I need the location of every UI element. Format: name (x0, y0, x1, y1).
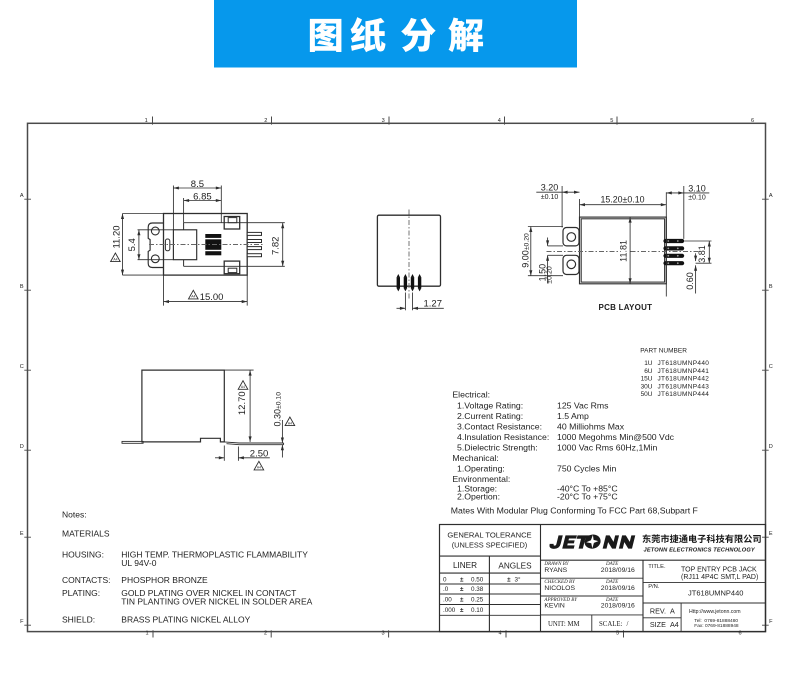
svg-text:1000 Vac Rms 60Hz,1Min: 1000 Vac Rms 60Hz,1Min (557, 443, 657, 453)
svg-text:±: ± (460, 586, 464, 593)
svg-text:2018/09/16: 2018/09/16 (601, 567, 635, 574)
svg-text:1: 1 (145, 118, 148, 124)
svg-text:PHOSPHOR BRONZE: PHOSPHOR BRONZE (121, 575, 208, 585)
svg-text:A4: A4 (191, 295, 195, 299)
svg-text:(RJ11 4P4C SMT,L PAD): (RJ11 4P4C SMT,L PAD) (681, 574, 758, 581)
svg-text:A: A (20, 193, 24, 199)
svg-text:(UNLESS SPECIFIED): (UNLESS SPECIFIED) (452, 541, 528, 550)
svg-text:C: C (769, 364, 773, 370)
svg-text:1.Operating:: 1.Operating: (457, 464, 505, 474)
svg-text:4.Insulation Resistance:: 4.Insulation Resistance: (457, 432, 549, 442)
svg-text:.000: .000 (443, 607, 456, 614)
svg-text:F: F (20, 619, 24, 625)
svg-text:Environmental:: Environmental: (452, 474, 510, 484)
svg-text:6: 6 (751, 118, 754, 124)
svg-text:JT618UMNP441: JT618UMNP441 (658, 368, 710, 375)
svg-text:B: B (20, 284, 24, 290)
svg-text:2.Current Rating:: 2.Current Rating: (457, 411, 523, 421)
svg-text:A4: A4 (670, 620, 679, 629)
svg-text:8.5: 8.5 (191, 179, 204, 190)
svg-text:D: D (20, 444, 24, 450)
svg-text:ANGLES: ANGLES (498, 561, 532, 570)
svg-text:30U: 30U (641, 383, 653, 390)
svg-text:A4: A4 (241, 385, 245, 389)
svg-text:12.70: 12.70 (237, 391, 248, 415)
svg-text:1U: 1U (644, 360, 653, 367)
svg-text:E: E (20, 531, 24, 537)
svg-text:NICOLOS: NICOLOS (544, 585, 575, 592)
svg-text:PCB LAYOUT: PCB LAYOUT (599, 303, 653, 312)
svg-text:SIZE: SIZE (650, 620, 666, 629)
svg-text:±0.10: ±0.10 (688, 195, 706, 202)
svg-text:3.Contact Resistance:: 3.Contact Resistance: (457, 422, 542, 432)
svg-text:RYANS: RYANS (544, 567, 567, 574)
svg-text:±: ± (507, 576, 511, 583)
svg-text:2: 2 (264, 630, 267, 636)
svg-text:2018/09/16: 2018/09/16 (601, 603, 635, 610)
svg-text:PART NUMBER: PART NUMBER (640, 348, 687, 355)
svg-text:40 Milliohms Max: 40 Milliohms Max (557, 422, 625, 432)
svg-text:3: 3 (381, 630, 384, 636)
svg-text:0.60: 0.60 (685, 272, 695, 290)
svg-text:JETONN ELECTRONICS TECHNOLOGY: JETONN ELECTRONICS TECHNOLOGY (644, 547, 756, 553)
svg-text:Electrical:: Electrical: (452, 390, 490, 400)
svg-text:±: ± (460, 597, 464, 604)
svg-text:-20°C To +75°C: -20°C To +75°C (557, 492, 618, 502)
svg-text:±: ± (460, 577, 464, 584)
svg-text:750 Cycles Min: 750 Cycles Min (557, 464, 617, 474)
svg-text:UL 94V-0: UL 94V-0 (121, 558, 156, 568)
svg-text:LINER: LINER (453, 561, 477, 570)
svg-text:3°: 3° (515, 575, 522, 583)
svg-text:0.50: 0.50 (471, 577, 484, 584)
svg-text:3.20: 3.20 (541, 183, 559, 193)
svg-text:0.25: 0.25 (471, 597, 484, 604)
svg-text:1.Voltage Rating:: 1.Voltage Rating: (457, 401, 523, 411)
svg-text:Notes:: Notes: (62, 510, 87, 520)
svg-text:A: A (670, 607, 675, 616)
svg-text:TITLE.: TITLE. (648, 564, 666, 570)
svg-text:Mechanical:: Mechanical: (452, 453, 498, 463)
svg-text:UNIT:: UNIT: (548, 621, 566, 628)
svg-text:A4: A4 (288, 421, 292, 425)
svg-text:JT618UMNP443: JT618UMNP443 (658, 383, 710, 390)
svg-text:±0.20: ±0.20 (546, 266, 553, 284)
svg-text:11.81: 11.81 (618, 240, 628, 262)
svg-text:6U: 6U (644, 368, 653, 375)
svg-text:SCALE:: SCALE: (599, 621, 623, 628)
svg-text:4: 4 (498, 118, 501, 124)
svg-text:A4: A4 (113, 257, 117, 261)
svg-text:MM: MM (568, 621, 580, 628)
svg-text:11.20: 11.20 (111, 225, 122, 248)
svg-text:Http://www.jetonn.com: Http://www.jetonn.com (689, 609, 741, 615)
svg-text:.00: .00 (443, 597, 452, 604)
svg-text:A4: A4 (257, 466, 261, 470)
svg-text:1: 1 (145, 630, 148, 636)
svg-text:JT618UMNP440: JT618UMNP440 (658, 360, 710, 367)
svg-text:TOP ENTRY PCB JACK: TOP ENTRY PCB JACK (681, 567, 757, 574)
svg-text:Fax: 0769-81888948: Fax: 0769-81888948 (694, 623, 739, 629)
svg-text:KEVIN: KEVIN (544, 603, 564, 610)
svg-text:1.27: 1.27 (424, 299, 443, 310)
svg-text:15.00: 15.00 (200, 292, 224, 303)
svg-text:P/N.: P/N. (648, 584, 660, 590)
svg-text:2.50: 2.50 (250, 448, 268, 459)
svg-text:2018/09/16: 2018/09/16 (601, 585, 635, 592)
svg-text:REV.: REV. (650, 607, 666, 616)
svg-text:2: 2 (264, 118, 267, 124)
svg-text:125 Vac Rms: 125 Vac Rms (557, 401, 609, 411)
svg-text:JT618UMNP442: JT618UMNP442 (658, 376, 710, 383)
svg-text:2.Opertion:: 2.Opertion: (457, 492, 500, 502)
svg-text:SHIELD:: SHIELD: (62, 615, 95, 625)
svg-text:B: B (769, 284, 773, 290)
svg-text:1000 Megohms Min@500 Vdc: 1000 Megohms Min@500 Vdc (557, 432, 675, 442)
svg-text:50U: 50U (641, 391, 653, 398)
svg-text:JT618UMNP440: JT618UMNP440 (688, 588, 743, 597)
svg-text:±: ± (460, 607, 464, 614)
svg-text:6.85: 6.85 (193, 191, 212, 202)
svg-text:E: E (769, 531, 773, 537)
svg-text:HOUSING:: HOUSING: (62, 550, 104, 560)
svg-text:3: 3 (382, 118, 385, 124)
svg-text:5.4: 5.4 (127, 238, 138, 251)
svg-text:±0.10: ±0.10 (541, 194, 559, 201)
svg-text:C: C (20, 364, 24, 370)
svg-text:5.Dielectric Strength:: 5.Dielectric Strength: (457, 443, 538, 453)
svg-text:JT618UMNP444: JT618UMNP444 (658, 391, 710, 398)
svg-text:0: 0 (443, 577, 447, 584)
svg-text:3.81: 3.81 (697, 245, 707, 263)
svg-text:MATERIALS: MATERIALS (62, 529, 110, 539)
svg-text:GENERAL TOLERANCE: GENERAL TOLERANCE (447, 531, 531, 540)
svg-text:TIN PLANTING OVER NICKEL IN SO: TIN PLANTING OVER NICKEL IN SOLDER AREA (121, 596, 312, 606)
svg-text:3.10: 3.10 (688, 183, 706, 193)
svg-text:0.10: 0.10 (471, 607, 484, 614)
svg-text:5: 5 (610, 118, 613, 124)
svg-text:Mates With Modular Plug Confor: Mates With Modular Plug Conforming To FC… (451, 506, 698, 516)
svg-text:0.38: 0.38 (471, 586, 484, 593)
svg-text:.0: .0 (443, 586, 449, 593)
svg-text:CONTACTS:: CONTACTS: (62, 575, 110, 585)
svg-text:A: A (769, 193, 773, 199)
svg-text:1.5 Amp: 1.5 Amp (557, 411, 589, 421)
svg-text:/: / (627, 621, 629, 628)
svg-text:15U: 15U (641, 376, 653, 383)
svg-text:D: D (769, 444, 773, 450)
svg-text:PLATING:: PLATING: (62, 588, 100, 598)
svg-text:7.82: 7.82 (271, 237, 282, 256)
svg-text:15.20±0.10: 15.20±0.10 (601, 195, 645, 205)
svg-text:F: F (769, 619, 773, 625)
svg-text:BRASS PLATING NICKEL ALLOY: BRASS PLATING NICKEL ALLOY (121, 615, 250, 625)
